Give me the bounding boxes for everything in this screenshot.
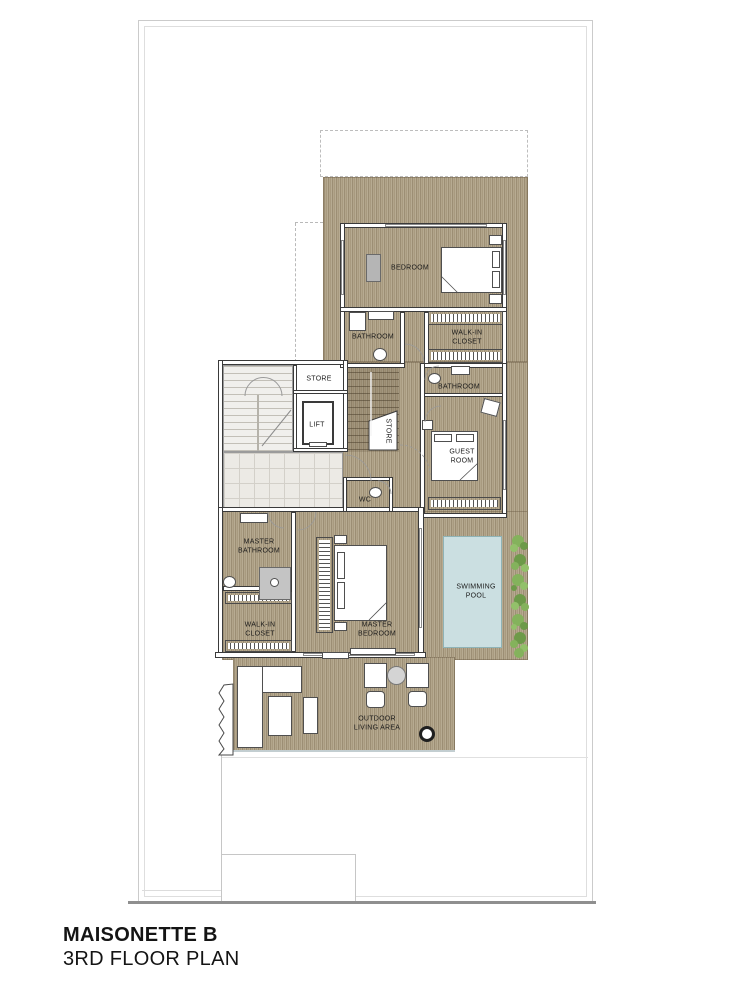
pillow (337, 552, 345, 579)
wall (424, 393, 503, 397)
shower-drain (270, 578, 279, 587)
toilet (373, 348, 387, 361)
side-table-round (387, 666, 406, 685)
label-bathroom-top: BATHROOM (352, 334, 394, 343)
label-master-bathroom: MASTER BATHROOM (233, 538, 285, 556)
wall (400, 312, 405, 368)
toilet (223, 576, 236, 588)
pillow (456, 434, 474, 442)
window (341, 240, 344, 295)
sink-counter (368, 311, 394, 320)
boundary-connector-line (142, 890, 221, 891)
sliding-door (322, 652, 349, 659)
pillow (492, 251, 500, 268)
ground-line (128, 901, 596, 904)
label-bedroom: BEDROOM (391, 265, 429, 274)
closet-shelf (428, 311, 503, 325)
wall (420, 513, 507, 518)
label-master-bedroom: MASTER BEDROOM (351, 621, 403, 639)
label-guest-room: GUEST ROOM (443, 448, 481, 466)
wall (218, 360, 223, 512)
label-store-mid: STORE (383, 418, 392, 443)
wall (218, 507, 424, 512)
ottoman (366, 691, 385, 708)
setback-line (222, 757, 588, 758)
wall (293, 390, 348, 394)
pillow (492, 271, 500, 288)
wc-wall (343, 477, 347, 512)
lift-door (309, 442, 327, 447)
window (385, 224, 487, 227)
staircase-divider (257, 395, 259, 451)
closet-shelf (428, 349, 503, 363)
wall (291, 512, 296, 652)
wall (293, 365, 297, 452)
label-bathroom-guest: BATHROOM (438, 384, 480, 393)
wall (343, 360, 348, 452)
nightstand (422, 420, 433, 430)
dashed-roof-outline (320, 130, 528, 177)
floor-plan: BEDROOM BATHROOM WALK-IN CLOSET STORE LI… (0, 0, 730, 1000)
wc-wall (343, 477, 393, 481)
pillow (434, 434, 452, 442)
nightstand (489, 235, 502, 245)
window (419, 528, 422, 628)
annex-outline (221, 854, 356, 903)
label-lift: LIFT (309, 422, 324, 431)
label-walkin-closet-master: WALK-IN CLOSET (239, 621, 281, 639)
coffee-table (303, 697, 318, 734)
window (503, 240, 506, 295)
lounge-chair (364, 663, 387, 688)
lounge-chair (406, 663, 429, 688)
site-line-west (221, 752, 222, 855)
sink-counter (240, 513, 268, 523)
deck-edge-shadow (233, 750, 455, 752)
sofa-section (237, 666, 263, 748)
sink-counter (451, 366, 470, 375)
wall (293, 448, 348, 452)
label-wc: WC (359, 497, 371, 506)
window (503, 420, 506, 490)
wardrobe (316, 537, 333, 633)
nightstand (334, 622, 347, 631)
ottoman (408, 691, 427, 707)
closet-shelf (428, 497, 501, 510)
tv-unit (366, 254, 381, 282)
label-store-top: STORE (306, 376, 331, 385)
closet-shelf (225, 640, 292, 652)
label-outdoor-living: OUTDOOR LIVING AREA (346, 715, 408, 733)
sliding-door (350, 648, 396, 655)
toilet (428, 373, 441, 384)
dashed-line-west (295, 223, 296, 362)
dashed-line-north (295, 222, 323, 223)
pillow (337, 582, 345, 609)
wall (218, 360, 345, 365)
nightstand (489, 294, 502, 304)
label-walkin-closet-top: WALK-IN CLOSET (446, 329, 488, 347)
lobby-floor (223, 452, 343, 508)
plan-title: MAISONETTE B (63, 924, 218, 947)
nightstand (334, 535, 347, 544)
wc-wall (389, 477, 393, 512)
fire-pit (419, 726, 435, 742)
label-swimming-pool: SWIMMING POOL (452, 583, 500, 601)
plan-subtitle: 3RD FLOOR PLAN (63, 948, 239, 971)
coffee-table (268, 696, 292, 736)
wall (420, 363, 425, 518)
shower (349, 312, 366, 331)
wall (340, 363, 405, 368)
